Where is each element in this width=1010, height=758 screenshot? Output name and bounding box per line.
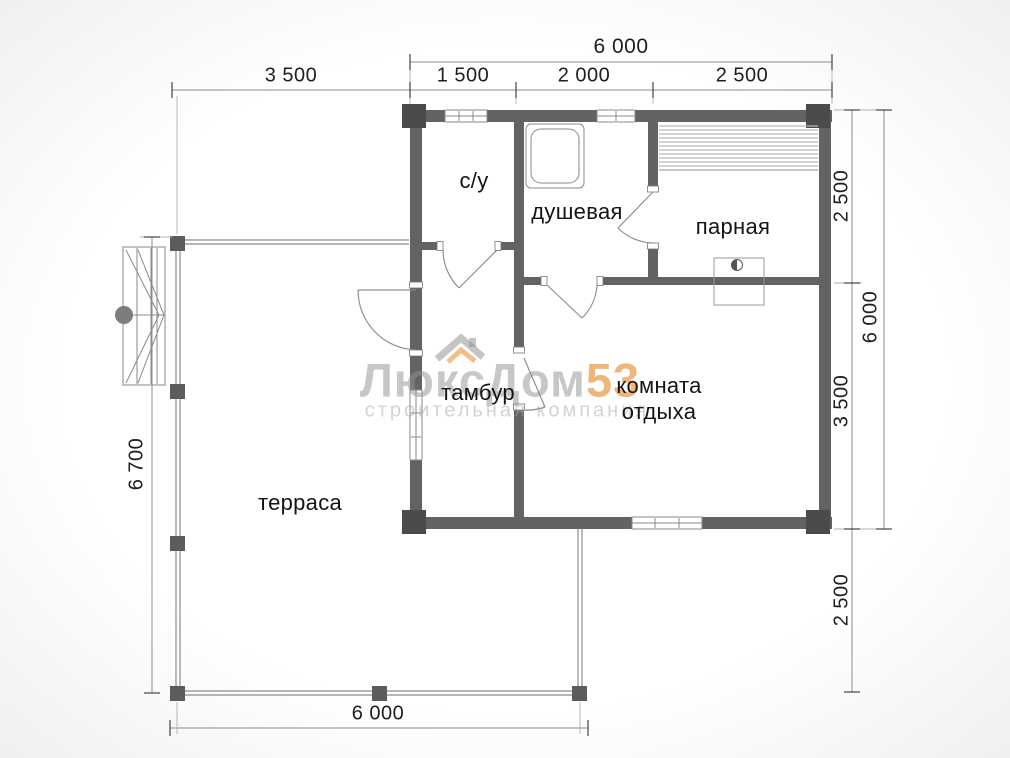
dim-right-mid: 3 500: [831, 375, 854, 428]
shower-tray-symbol: [526, 124, 584, 188]
room-label-terrace: терраса: [258, 490, 342, 516]
room-label-lounge-line2: отдыха: [616, 399, 701, 425]
room-label-vestibule: тамбур: [441, 380, 515, 406]
dim-top-total: 6 000: [593, 35, 648, 59]
dim-left-total: 6 700: [126, 438, 149, 491]
bench-hatch: [659, 126, 818, 170]
entrance-door: [358, 290, 416, 350]
stairs-symbol: [115, 247, 165, 385]
room-label-steam: парная: [696, 214, 770, 240]
terrace-posts: [170, 236, 587, 701]
room-label-shower: душевая: [531, 199, 622, 225]
shower-door: [547, 285, 597, 318]
dim-bottom-total: 6 000: [352, 703, 405, 726]
dim-right-total: 6 000: [860, 291, 883, 344]
room-label-lounge: комната отдыха: [616, 373, 701, 425]
room-label-lounge-line1: комната: [616, 373, 701, 399]
room-label-wc: с/у: [459, 168, 488, 194]
dim-top-seg-2000: 2 000: [558, 65, 611, 88]
dim-top-seg-1500: 1 500: [437, 65, 490, 88]
dim-right-lower: 2 500: [831, 574, 854, 627]
wc-door: [443, 250, 497, 288]
floor-plan-canvas: ЛюксДом53 строительная компания с/у душе…: [0, 0, 1010, 758]
steam-room-door: [618, 192, 653, 243]
dim-top-seg-3500: 3 500: [265, 65, 318, 88]
dim-right-upper: 2 500: [831, 170, 854, 223]
dim-top-seg-2500: 2 500: [716, 65, 769, 88]
